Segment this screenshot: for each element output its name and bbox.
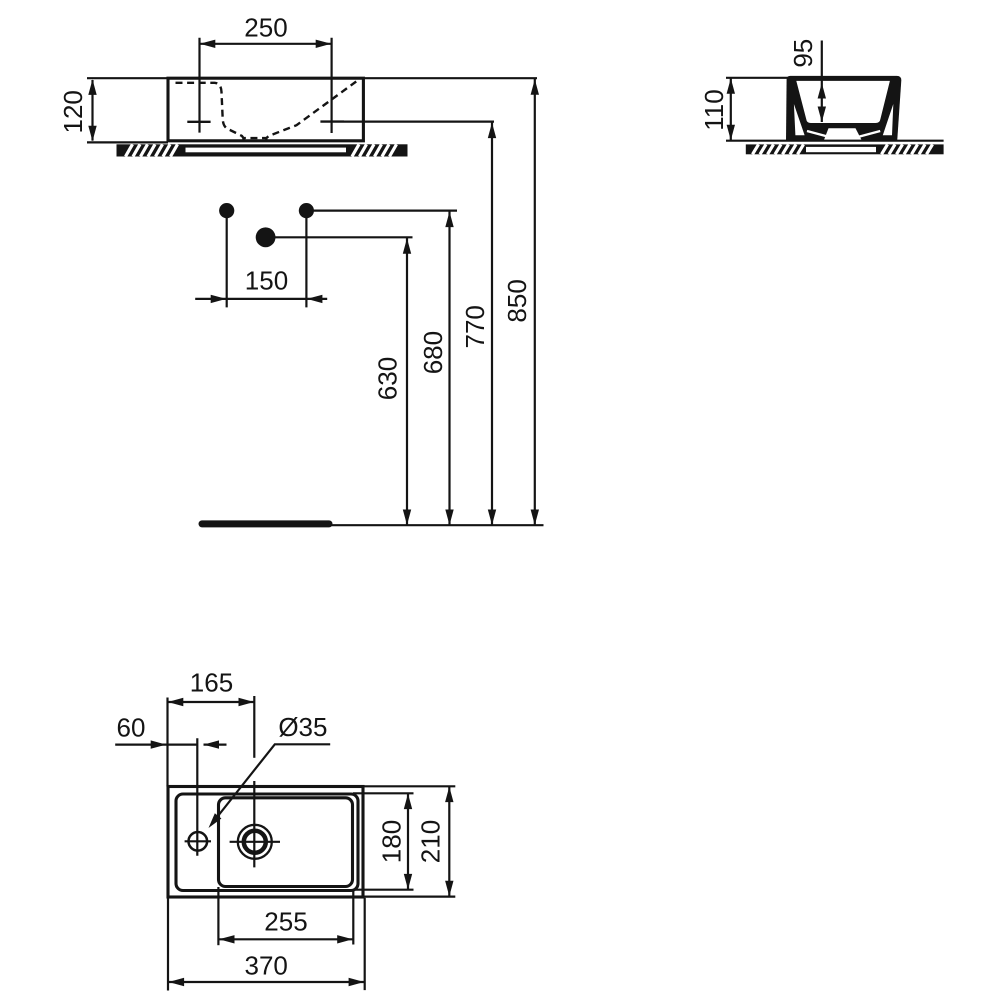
svg-text:770: 770 [460, 305, 490, 348]
svg-text:370: 370 [245, 951, 288, 981]
svg-text:630: 630 [373, 357, 403, 400]
svg-text:120: 120 [58, 90, 88, 133]
svg-text:165: 165 [190, 668, 233, 698]
svg-text:250: 250 [244, 13, 287, 43]
svg-text:255: 255 [264, 907, 307, 937]
svg-text:210: 210 [415, 820, 445, 863]
svg-text:180: 180 [376, 820, 406, 863]
svg-text:95: 95 [788, 39, 818, 68]
svg-text:850: 850 [502, 279, 532, 322]
svg-text:Ø35: Ø35 [278, 712, 327, 742]
svg-text:60: 60 [117, 713, 146, 743]
svg-text:680: 680 [418, 331, 448, 374]
svg-text:150: 150 [245, 265, 288, 295]
svg-text:110: 110 [699, 89, 729, 130]
